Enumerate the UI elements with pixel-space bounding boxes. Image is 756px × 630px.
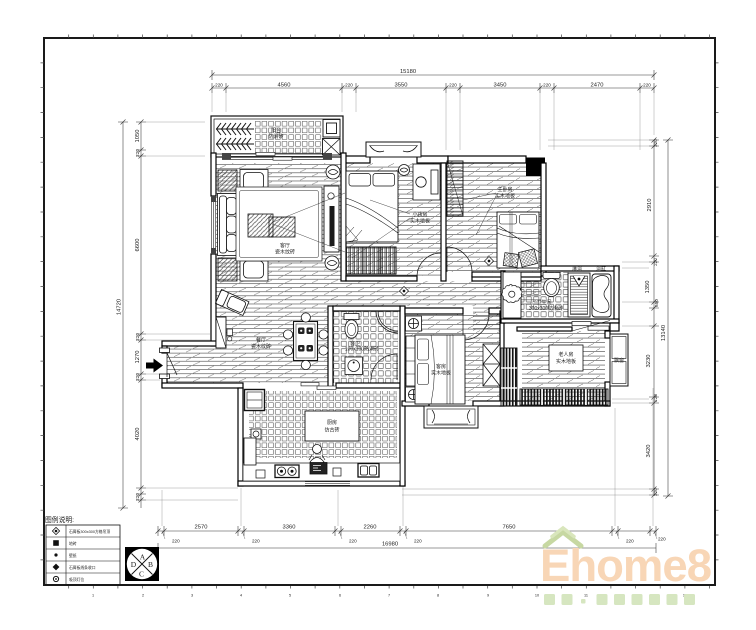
svg-text:10: 10 [535,594,539,598]
svg-text:3360: 3360 [283,525,296,531]
svg-text:650: 650 [654,299,659,307]
svg-text:瓷木纹砖: 瓷木纹砖 [251,343,271,350]
svg-text:A: A [140,553,146,562]
svg-text:客房: 客房 [436,363,446,370]
svg-text:6: 6 [339,594,341,598]
svg-text:壁纸: 壁纸 [69,553,77,558]
svg-text:实木地板: 实木地板 [495,193,515,200]
svg-text:实木地板: 实木地板 [431,370,451,377]
svg-text:3450: 3450 [494,83,507,89]
svg-text:1270: 1270 [135,351,141,364]
svg-text:1350: 1350 [645,281,651,294]
svg-text:6600: 6600 [135,239,141,252]
svg-text:5: 5 [289,594,291,598]
svg-text:220: 220 [135,149,140,157]
svg-text:220: 220 [414,539,422,544]
svg-text:C: C [139,570,144,579]
svg-text:D: D [131,560,137,569]
svg-text:厨房: 厨房 [327,419,337,426]
svg-text:3: 3 [191,594,193,598]
svg-text:石膏板300x300方格吊顶: 石膏板300x300方格吊顶 [69,529,110,534]
svg-text:220: 220 [135,373,140,381]
svg-text:B: B [148,560,153,569]
svg-text:4020: 4020 [135,428,141,441]
svg-text:老人房: 老人房 [558,351,573,358]
svg-text:1050: 1050 [135,130,141,143]
svg-text:小孩房: 小孩房 [412,211,427,218]
svg-text:主卧房: 主卧房 [497,186,512,193]
svg-text:石膏板线条收口: 石膏板线条收口 [69,565,96,570]
svg-text:浴缸: 浴缸 [596,266,606,273]
svg-text:飘窗: 飘窗 [614,357,624,364]
svg-text:220: 220 [653,394,658,402]
svg-text:瓷木纹砖: 瓷木纹砖 [275,249,295,256]
svg-text:客厅: 客厅 [280,242,290,249]
svg-text:2260: 2260 [364,525,377,531]
svg-text:300x300防滑砖: 300x300防滑砖 [529,305,563,312]
svg-text:4: 4 [240,594,242,598]
svg-text:220: 220 [349,539,357,544]
svg-text:2570: 2570 [195,525,208,531]
svg-text:14720: 14720 [117,299,123,315]
svg-text:淋浴: 淋浴 [572,266,582,273]
svg-text:7: 7 [388,594,390,598]
svg-text:图例说明:: 图例说明: [45,515,74,524]
svg-text:8: 8 [437,594,439,598]
svg-text:2910: 2910 [647,199,653,212]
svg-text:3420: 3420 [646,445,652,458]
svg-text:220: 220 [345,83,353,88]
svg-text:220: 220 [643,83,651,88]
svg-text:220: 220 [653,488,658,496]
svg-text:餐厅: 餐厅 [256,337,266,344]
svg-text:卫生间: 卫生间 [536,299,551,306]
svg-text:16980: 16980 [382,542,398,548]
svg-text:地砖: 地砖 [69,541,77,546]
svg-text:2: 2 [142,594,144,598]
svg-text:100x100防滑砖: 100x100防滑砖 [345,346,379,353]
svg-text:3230: 3230 [646,355,652,368]
svg-text:防滑砖: 防滑砖 [268,133,283,140]
svg-text:220: 220 [653,139,658,147]
svg-text:4560: 4560 [278,83,291,89]
svg-text:Ehome8: Ehome8 [540,540,711,591]
svg-text:7650: 7650 [503,525,516,531]
svg-text:实木地板: 实木地板 [410,218,430,225]
svg-text:吸顶灯位: 吸顶灯位 [69,577,84,582]
svg-text:220: 220 [172,539,180,544]
svg-text:3550: 3550 [395,83,408,89]
svg-text:实木地板: 实木地板 [556,358,576,365]
svg-text:220: 220 [135,333,140,341]
svg-text:9: 9 [487,594,489,598]
svg-text:220: 220 [215,83,223,88]
svg-text:阳台: 阳台 [271,127,281,134]
svg-text:220: 220 [252,539,260,544]
svg-text:15180: 15180 [400,69,416,75]
svg-text:220: 220 [543,83,551,88]
svg-text:220: 220 [135,493,140,501]
svg-text:220: 220 [653,258,658,266]
svg-text:13140: 13140 [661,325,667,341]
svg-text:2470: 2470 [591,83,604,89]
svg-text:1: 1 [92,594,94,598]
svg-text:11: 11 [584,594,588,598]
svg-text:仿古砖: 仿古砖 [324,427,339,434]
svg-text:220: 220 [449,83,457,88]
